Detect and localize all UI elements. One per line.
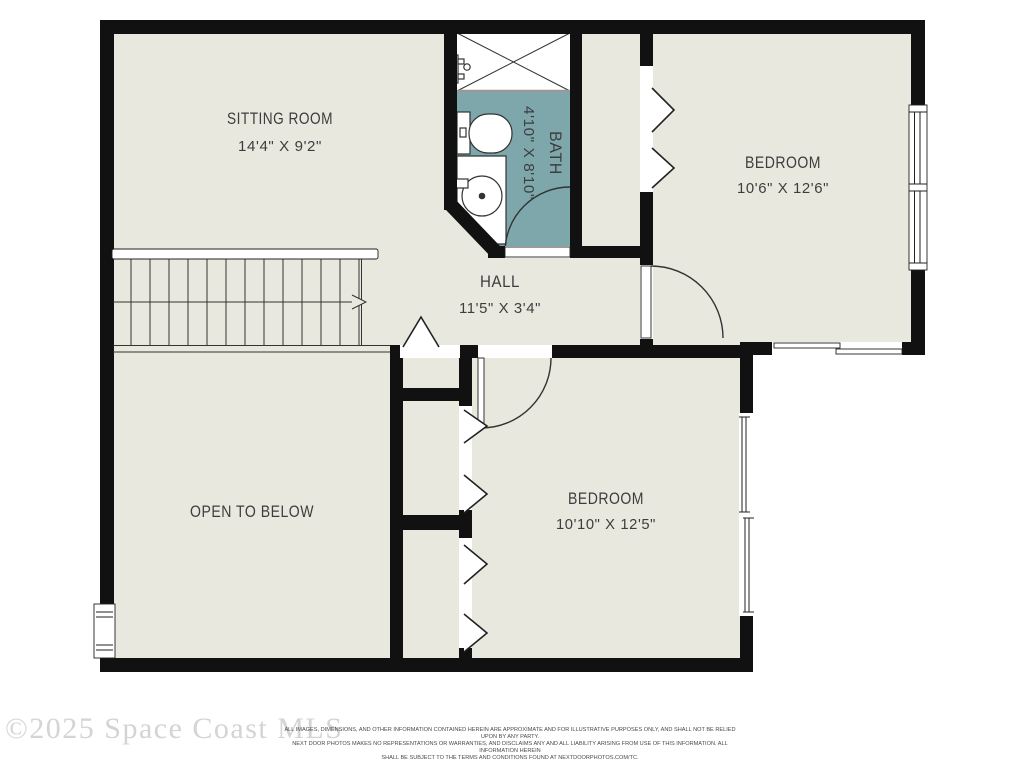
sliding-door-icon [772,342,902,355]
bath-door-leaf [505,247,570,257]
open-to-below-label: OPEN TO BELOW [190,502,314,521]
disclaimer: ALL IMAGES, DIMENSIONS, AND OTHER INFORM… [280,727,740,762]
hall-label: HALL [480,272,520,291]
window-icon [909,105,927,270]
disclaimer-line: ALL IMAGES, DIMENSIONS, AND OTHER INFORM… [280,727,740,741]
bedroom-top-dims: 10'6" X 12'6" [737,180,829,197]
disclaimer-line: SHALL BE SUBJECT TO THE TERMS AND CONDIT… [280,755,740,762]
hall-dims: 11'5" X 3'4" [459,300,541,317]
disclaimer-line: NEXT DOOR PHOTOS MAKES NO REPRESENTATION… [280,741,740,755]
shower-icon [452,33,570,91]
bedroom-bottom-dims: 10'10" X 12'5" [556,516,656,533]
floor-plan-svg: SITTING ROOM 14'4" X 9'2" BATH 4'10" X 8… [0,0,1024,710]
sitting-room-label: SITTING ROOM [227,109,333,128]
toilet-icon [457,112,512,154]
bedroom2-door-leaf [478,358,484,428]
window-icon [739,413,754,616]
window-icon [94,604,115,658]
bedroom-top-label: BEDROOM [745,153,821,172]
stair-rail [112,249,378,259]
bath-label: BATH [546,131,565,175]
bedroom1-door-leaf [641,266,651,338]
sitting-room-dims: 14'4" X 9'2" [238,138,322,155]
bedroom-bottom-label: BEDROOM [568,489,644,508]
bath-dims: 4'10" X 8'10" [520,106,537,200]
floor-plan-page: SITTING ROOM 14'4" X 9'2" BATH 4'10" X 8… [0,0,1024,768]
